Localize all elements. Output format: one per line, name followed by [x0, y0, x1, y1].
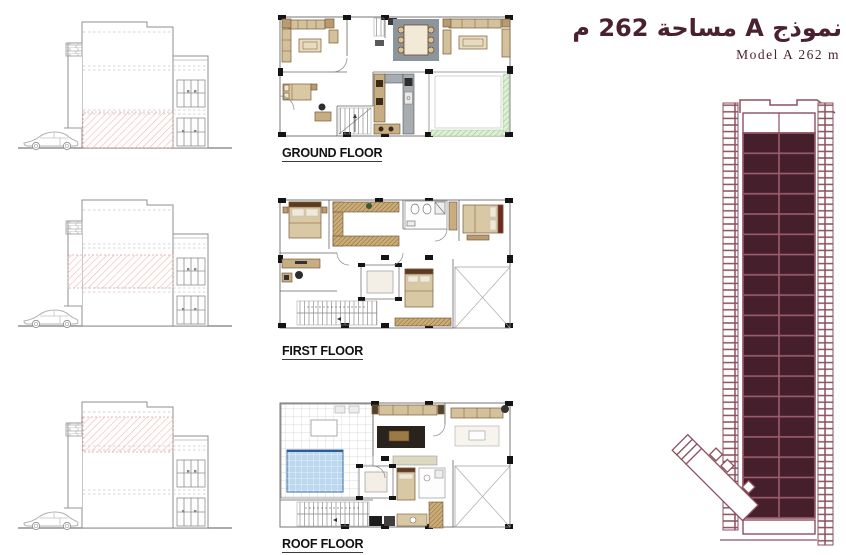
ground-floor-highlight-band	[83, 112, 173, 148]
bathroom-1	[405, 201, 447, 229]
elevation-first-floor-drawing	[10, 196, 235, 331]
light-well	[358, 263, 402, 301]
roof-floor-label: ROOF FLOOR	[282, 537, 363, 553]
tower-base-bar	[743, 520, 815, 534]
light-well	[356, 464, 396, 500]
stairs	[297, 301, 377, 325]
elevation-ground-floor-drawing	[10, 18, 235, 153]
first-floor-plan	[277, 197, 517, 338]
ground-floor-plan	[277, 14, 517, 146]
tower-right-strip	[818, 103, 833, 545]
dining-area	[393, 19, 439, 61]
wardrobe	[449, 202, 457, 230]
stairs	[297, 502, 369, 526]
roof-floor-plan	[277, 400, 517, 533]
first-floor-highlight-band	[68, 255, 173, 288]
bedroom-3	[405, 269, 433, 307]
elevation-roof-floor-drawing	[10, 398, 235, 533]
model-title-arabic: نموذج A مساحة 262 م	[542, 14, 842, 43]
first-floor-label: FIRST FLOOR	[282, 344, 363, 360]
dresser	[395, 318, 451, 326]
roof-floor-highlight-band	[83, 417, 173, 452]
tower-unit-cells	[743, 133, 815, 518]
car-icon	[24, 512, 78, 530]
swimming-pool	[287, 450, 343, 492]
roof-bathroom	[419, 468, 445, 498]
model-title-block: نموذج A مساحة 262 م Model A 262 m	[542, 14, 842, 63]
brochure-page: GROUND FLOOR FIRST FLOOR ROOF FLOOR نموذ…	[0, 0, 846, 555]
bedroom-1	[283, 202, 327, 238]
stairs	[339, 108, 371, 134]
car-icon	[24, 132, 78, 150]
counter	[393, 456, 437, 465]
roof-bedroom	[397, 468, 415, 500]
site-plan-tower	[660, 92, 846, 555]
car-icon	[24, 310, 78, 328]
model-title-english: Model A 262 m	[542, 47, 842, 63]
pantry-shelves	[429, 502, 443, 528]
ground-floor-label: GROUND FLOOR	[282, 146, 382, 162]
